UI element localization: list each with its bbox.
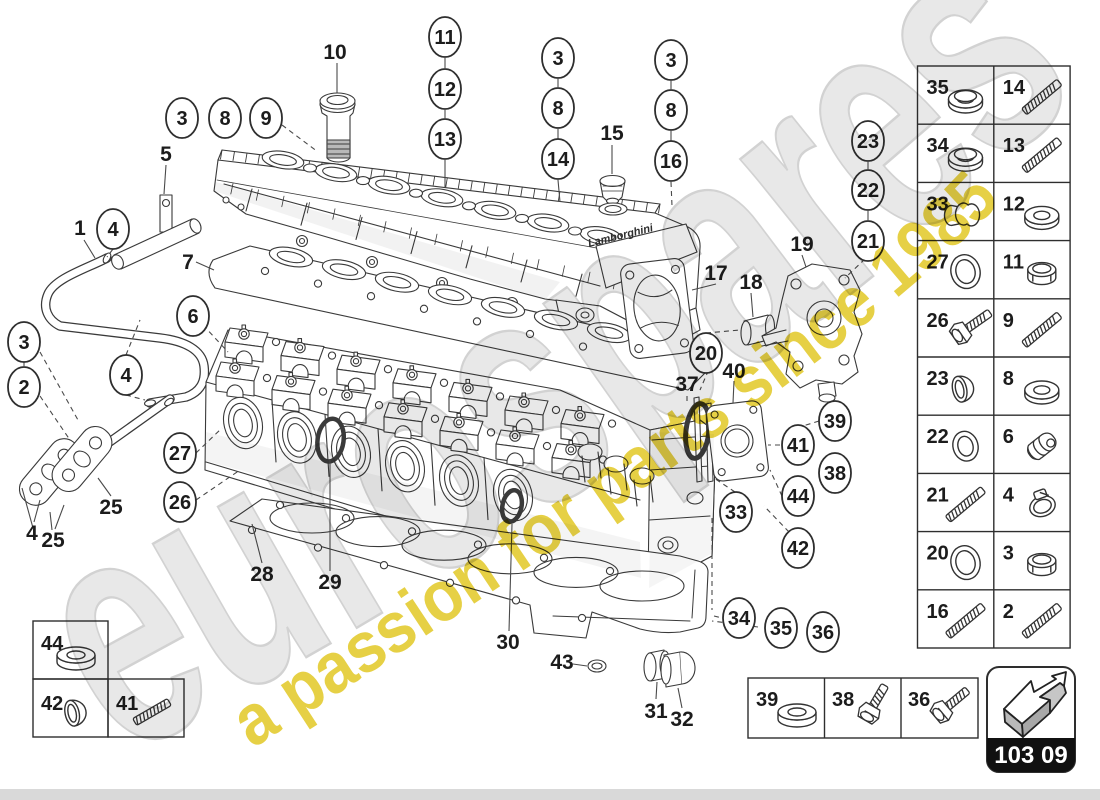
svg-text:42: 42 (787, 538, 809, 560)
svg-text:38: 38 (824, 463, 846, 485)
svg-text:7: 7 (182, 251, 194, 274)
svg-text:36: 36 (812, 622, 834, 644)
svg-text:12: 12 (434, 79, 456, 101)
svg-text:2: 2 (18, 377, 29, 399)
svg-text:39: 39 (756, 689, 778, 711)
svg-text:3: 3 (1003, 543, 1014, 565)
svg-text:2: 2 (1003, 601, 1014, 623)
svg-text:11: 11 (434, 27, 455, 49)
svg-text:3: 3 (552, 48, 563, 70)
svg-text:13: 13 (434, 129, 456, 151)
svg-text:41: 41 (787, 435, 809, 457)
svg-text:42: 42 (41, 693, 63, 715)
svg-text:5: 5 (160, 143, 172, 166)
svg-text:36: 36 (908, 689, 930, 711)
svg-text:4: 4 (120, 365, 132, 387)
svg-text:103 09: 103 09 (994, 742, 1067, 769)
svg-text:6: 6 (1003, 426, 1014, 448)
svg-text:43: 43 (550, 651, 573, 674)
svg-text:32: 32 (670, 708, 693, 731)
svg-text:8: 8 (1003, 368, 1014, 390)
svg-text:9: 9 (1003, 310, 1014, 332)
svg-text:8: 8 (219, 108, 230, 130)
svg-text:38: 38 (832, 689, 854, 711)
svg-text:22: 22 (927, 426, 949, 448)
svg-text:44: 44 (787, 486, 810, 508)
svg-text:9: 9 (260, 108, 271, 130)
svg-text:23: 23 (927, 368, 949, 390)
svg-text:4: 4 (1003, 484, 1015, 506)
svg-text:34: 34 (728, 608, 751, 630)
svg-text:20: 20 (927, 543, 949, 565)
svg-text:1: 1 (74, 217, 86, 240)
svg-text:4: 4 (107, 219, 119, 241)
svg-text:33: 33 (725, 502, 747, 524)
svg-text:8: 8 (552, 98, 563, 120)
svg-text:6: 6 (187, 306, 198, 328)
svg-text:35: 35 (770, 618, 792, 640)
svg-text:10: 10 (323, 41, 346, 64)
svg-text:3: 3 (18, 332, 29, 354)
svg-text:21: 21 (927, 484, 949, 506)
svg-text:3: 3 (176, 108, 187, 130)
svg-text:31: 31 (644, 700, 668, 723)
svg-text:30: 30 (496, 631, 519, 654)
svg-text:16: 16 (927, 601, 949, 623)
svg-text:39: 39 (824, 411, 846, 433)
